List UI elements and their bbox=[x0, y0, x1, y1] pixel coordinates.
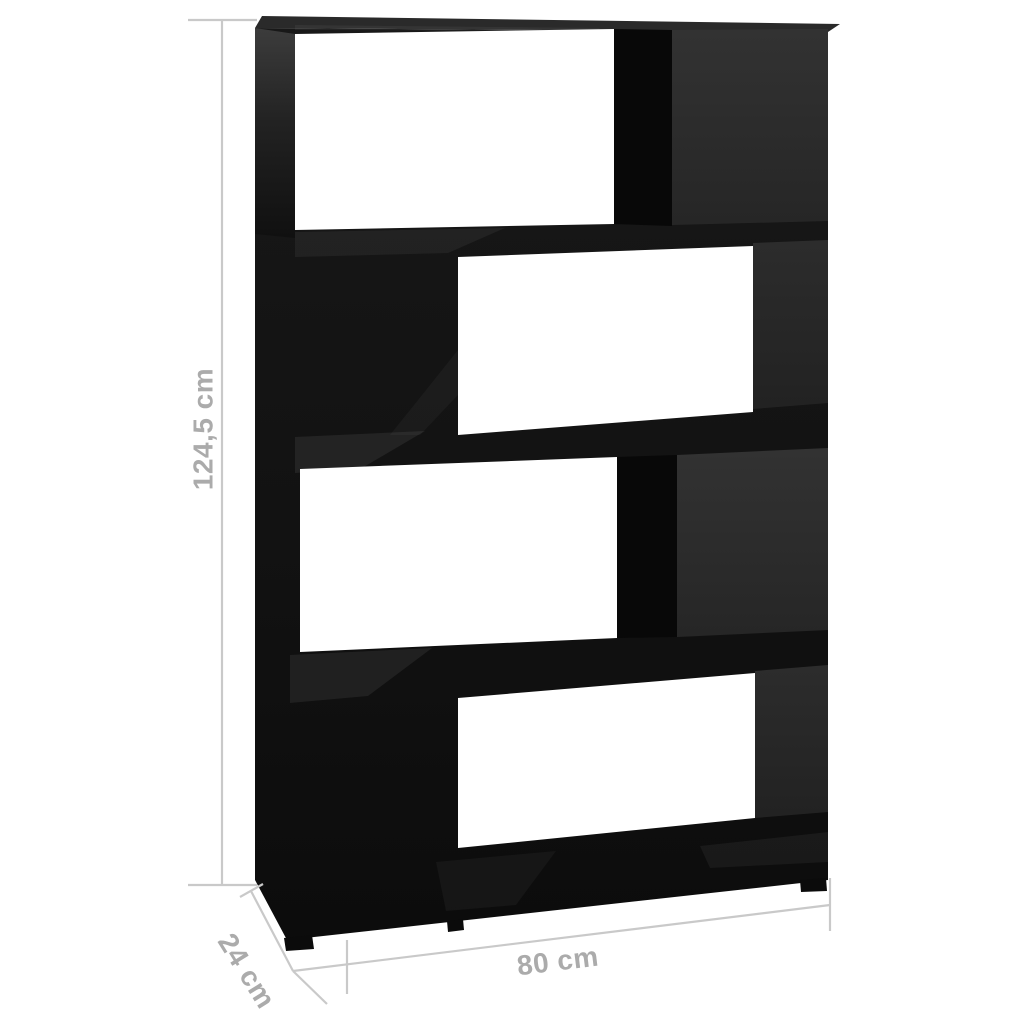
height-dimension-label: 124,5 cm bbox=[187, 368, 218, 490]
depth-cap-bottom bbox=[293, 971, 327, 1004]
tier2-opening bbox=[458, 246, 753, 435]
bookshelf bbox=[255, 16, 840, 951]
foot-right bbox=[800, 878, 827, 892]
dimension-diagram-svg: 124,5 cm 24 cm 80 cm bbox=[0, 0, 1024, 1024]
tier1-opening bbox=[295, 29, 614, 230]
tier4-right-panel bbox=[755, 665, 828, 818]
tier3-divider bbox=[617, 455, 677, 638]
tier1-divider bbox=[614, 29, 672, 226]
width-dimension-label: 80 cm bbox=[515, 941, 600, 982]
tier1-right-panel bbox=[672, 29, 828, 225]
height-dimension: 124,5 cm bbox=[187, 20, 257, 885]
tier3-opening bbox=[300, 457, 617, 652]
foot-middle bbox=[447, 919, 464, 932]
tier4-opening bbox=[458, 673, 755, 848]
shelf-left-column bbox=[255, 28, 295, 238]
product-image-canvas: 124,5 cm 24 cm 80 cm bbox=[0, 0, 1024, 1024]
tier2-right-panel bbox=[753, 240, 828, 409]
depth-dimension-label: 24 cm bbox=[212, 928, 282, 1014]
tier3-right-panel bbox=[677, 448, 828, 637]
